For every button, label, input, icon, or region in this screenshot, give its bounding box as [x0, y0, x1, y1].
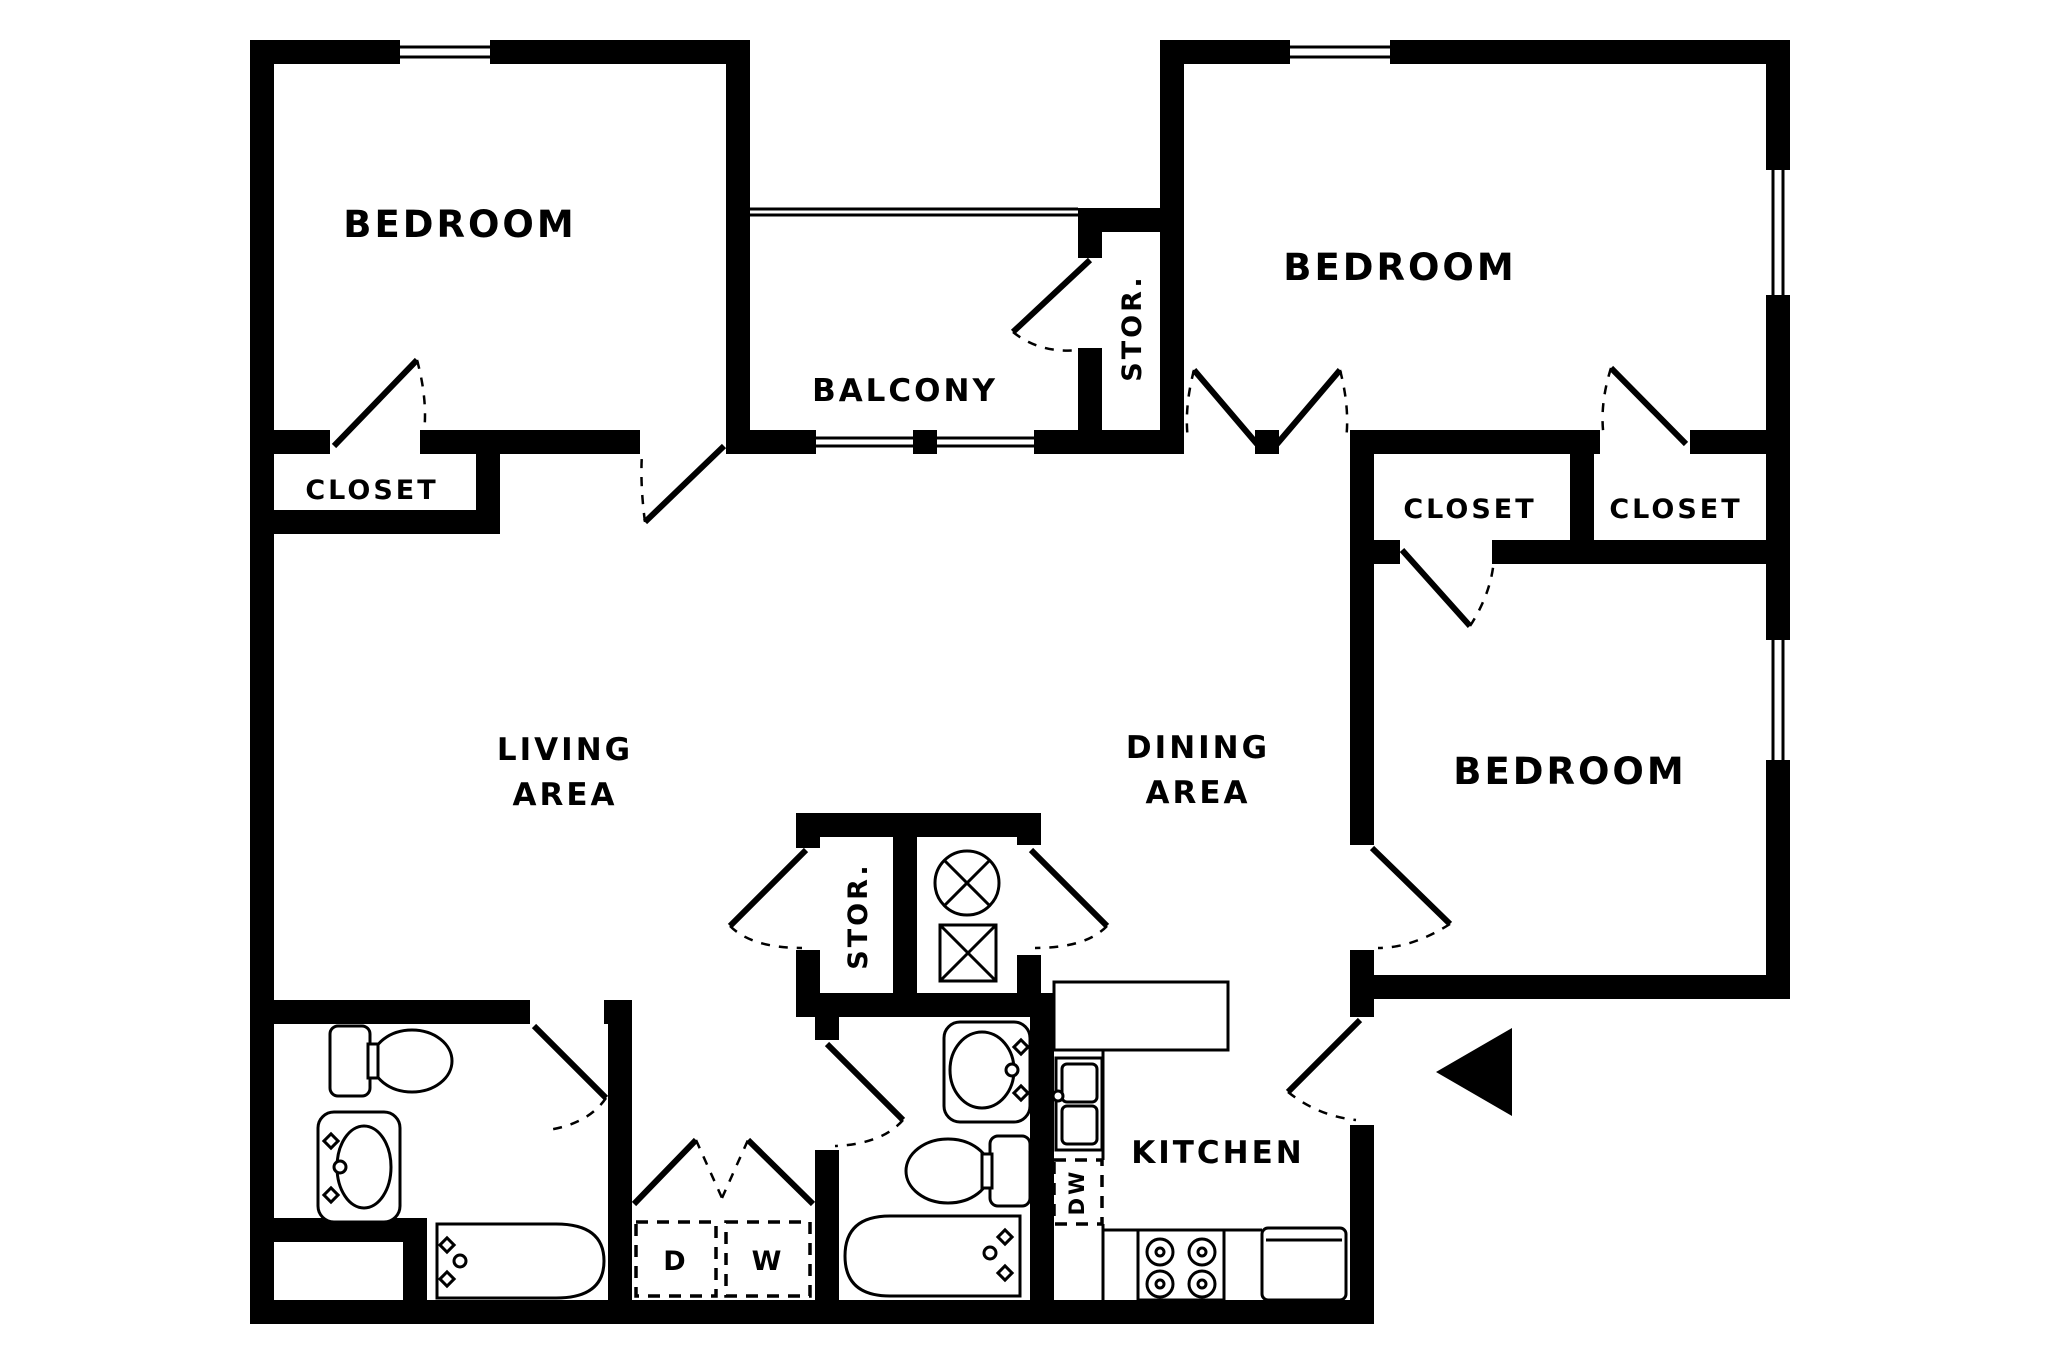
wall-left [250, 40, 274, 1324]
wall-bath2-west-a [815, 993, 839, 1040]
floor-plan: DW D W BEDROOM CLOSET BALCONY [0, 0, 2048, 1365]
wall-right-c [1766, 760, 1790, 999]
wall-band-c [726, 430, 804, 454]
wall-central-right-a [1017, 813, 1041, 845]
wall-bath1-top-b [604, 1000, 632, 1024]
window-right-upper [1773, 170, 1783, 295]
wall-bath2-kitchen [1030, 993, 1054, 1324]
door-storage-upper [1013, 260, 1090, 351]
label-living-line2: AREA [512, 777, 617, 813]
dryer-label: D [663, 1246, 688, 1277]
door-entry [1288, 1020, 1360, 1120]
label-closet-right-2: CLOSET [1609, 494, 1742, 525]
wall-bedroomtl-balcony [726, 40, 750, 454]
wall-central-right-b [1017, 955, 1041, 993]
wall-bedroom-mr-west-a [1350, 430, 1374, 845]
label-closet-right-1: CLOSET [1403, 494, 1536, 525]
door-bedroom-middle-right [1372, 848, 1450, 948]
wall-right-a [1766, 40, 1790, 170]
floor-plan-canvas: DW D W BEDROOM CLOSET BALCONY [0, 0, 2048, 1365]
wall-bath1-east [608, 1024, 632, 1324]
wall-top-left-b [490, 40, 750, 64]
wall-storage-upper-left-a [1078, 208, 1102, 258]
toilet-1 [330, 1026, 452, 1096]
window-bedroom-top-right [1290, 47, 1390, 57]
wall-band-e [1374, 430, 1600, 454]
label-bedroom-middle-right: BEDROOM [1453, 750, 1686, 793]
washer-label: W [752, 1246, 785, 1277]
label-storage-upper: STOR. [1117, 274, 1148, 381]
slider-jamb-right [1034, 430, 1046, 454]
balcony-railing [750, 209, 1078, 215]
label-dining-line1: DINING [1126, 730, 1270, 766]
label-bedroom-top-right: BEDROOM [1283, 246, 1516, 289]
wall-band-a [250, 430, 330, 454]
door-bedroom-top-left [641, 446, 724, 522]
sink-1 [318, 1112, 400, 1222]
wall-closet-strip-bottom-a [1374, 540, 1400, 564]
label-balcony: BALCONY [812, 373, 998, 409]
label-closet-top-left: CLOSET [305, 475, 438, 506]
wall-central-left-a [796, 813, 820, 848]
wall-storage-upper-left-b [1078, 348, 1102, 430]
wall-linen-right [403, 1218, 427, 1324]
wall-closet-divider [1570, 430, 1594, 564]
door-bathroom-2 [827, 1044, 903, 1146]
label-kitchen: KITCHEN [1131, 1135, 1305, 1171]
door-utility-closet [1031, 850, 1107, 948]
label-storage-central: STOR. [843, 862, 874, 969]
laundry-fixtures: D W [636, 1222, 810, 1296]
wall-bath2-west-b [815, 1150, 839, 1324]
door-closet-top-left [334, 360, 425, 446]
wall-band-d [1046, 430, 1078, 454]
slider-center-block [913, 430, 937, 454]
wall-storage-upper-bottom [1078, 430, 1184, 454]
door-closet-right-2 [1603, 368, 1686, 444]
wall-closet-tl-bottom [250, 510, 500, 534]
label-living-line1: LIVING [497, 732, 633, 768]
wall-band-b [420, 430, 640, 454]
wall-closet-tl-right [476, 454, 500, 534]
hvac-unit [940, 925, 996, 981]
wall-bedroom-mr-west-b [1350, 950, 1374, 1017]
wall-central-divider [893, 837, 917, 993]
dishwasher-label: DW [1065, 1169, 1089, 1216]
door-bathroom-1 [534, 1026, 606, 1130]
wall-wing-bottom [1374, 975, 1790, 999]
window-bedroom-top-left [400, 47, 490, 57]
wall-central-top [796, 813, 1041, 837]
wall-bath1-top-a [250, 1000, 530, 1024]
window-right-lower [1773, 640, 1783, 760]
wall-bedroomtr-left [1160, 40, 1184, 454]
bathroom-2-fixtures [845, 1022, 1030, 1296]
kitchen-counter-upper [1054, 982, 1228, 1050]
door-closet-right-1 [1402, 550, 1494, 626]
label-dining-line2: AREA [1145, 775, 1250, 811]
toilet-2 [906, 1136, 1030, 1206]
water-heater [935, 851, 999, 915]
wall-right-b [1766, 295, 1790, 640]
label-bedroom-top-left: BEDROOM [343, 203, 576, 246]
utility-fixtures [935, 851, 999, 981]
dishwasher: DW [1054, 1160, 1102, 1224]
stove [1138, 1230, 1224, 1300]
refrigerator [1262, 1228, 1346, 1300]
bathtub-2 [845, 1216, 1020, 1296]
door-storage-central [730, 850, 806, 948]
sink-2 [944, 1022, 1030, 1122]
wall-top-left-a [250, 40, 400, 64]
wall-band-f [1690, 430, 1766, 454]
wall-top-right-b [1390, 40, 1790, 64]
wall-central-left-b [796, 950, 820, 993]
slider-jamb-left [804, 430, 816, 454]
wall-closet-strip-bottom-b [1492, 540, 1766, 564]
wall-kitchen-east-lower [1350, 1125, 1374, 1324]
bathtub-1 [437, 1224, 604, 1298]
bathroom-1-fixtures [318, 1026, 604, 1298]
kitchen-sink [1053, 1058, 1102, 1150]
entry-arrow [1436, 1028, 1512, 1116]
laundry-bifold-doors [634, 1140, 813, 1204]
